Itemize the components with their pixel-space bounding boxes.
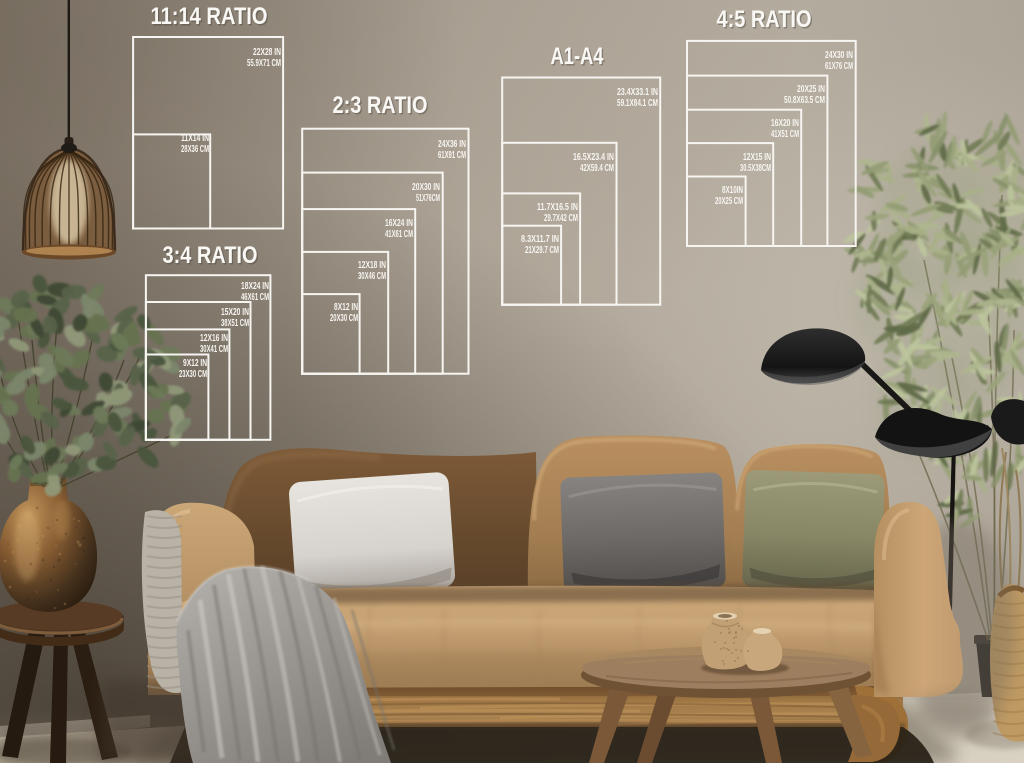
svg-text:30X46 CM: 30X46 CM bbox=[358, 270, 386, 282]
svg-text:42X59.4 CM: 42X59.4 CM bbox=[580, 162, 614, 174]
svg-text:23X30 CM: 23X30 CM bbox=[179, 368, 207, 380]
svg-text:41X61 CM: 41X61 CM bbox=[385, 228, 413, 240]
svg-text:2:3 RATIO: 2:3 RATIO bbox=[333, 92, 428, 119]
svg-text:50.8X63.5 CM: 50.8X63.5 CM bbox=[784, 94, 825, 106]
svg-text:41X51 CM: 41X51 CM bbox=[771, 128, 799, 140]
svg-text:61X76 CM: 61X76 CM bbox=[825, 60, 853, 72]
svg-text:51X76CM: 51X76CM bbox=[416, 192, 440, 204]
svg-text:28X36 CM: 28X36 CM bbox=[181, 143, 209, 155]
svg-text:29.7X42 CM: 29.7X42 CM bbox=[544, 212, 578, 224]
svg-text:59.1X84.1 CM: 59.1X84.1 CM bbox=[617, 97, 658, 109]
svg-text:20X30 CM: 20X30 CM bbox=[330, 312, 358, 324]
svg-text:A1-A4: A1-A4 bbox=[551, 43, 604, 70]
svg-text:30.5X38CM: 30.5X38CM bbox=[740, 162, 771, 174]
svg-text:55.9X71 CM: 55.9X71 CM bbox=[247, 57, 281, 69]
svg-text:11:14 RATIO: 11:14 RATIO bbox=[151, 3, 268, 30]
svg-text:3:4 RATIO: 3:4 RATIO bbox=[163, 242, 258, 269]
svg-text:30X41 CM: 30X41 CM bbox=[200, 343, 228, 355]
svg-text:38X51 CM: 38X51 CM bbox=[221, 317, 249, 329]
svg-text:21X29.7 CM: 21X29.7 CM bbox=[525, 244, 559, 256]
svg-text:4:5 RATIO: 4:5 RATIO bbox=[717, 6, 812, 33]
svg-text:20X25 CM: 20X25 CM bbox=[715, 195, 743, 207]
svg-text:46X61 CM: 46X61 CM bbox=[241, 291, 269, 303]
svg-text:61X91 CM: 61X91 CM bbox=[438, 149, 466, 161]
